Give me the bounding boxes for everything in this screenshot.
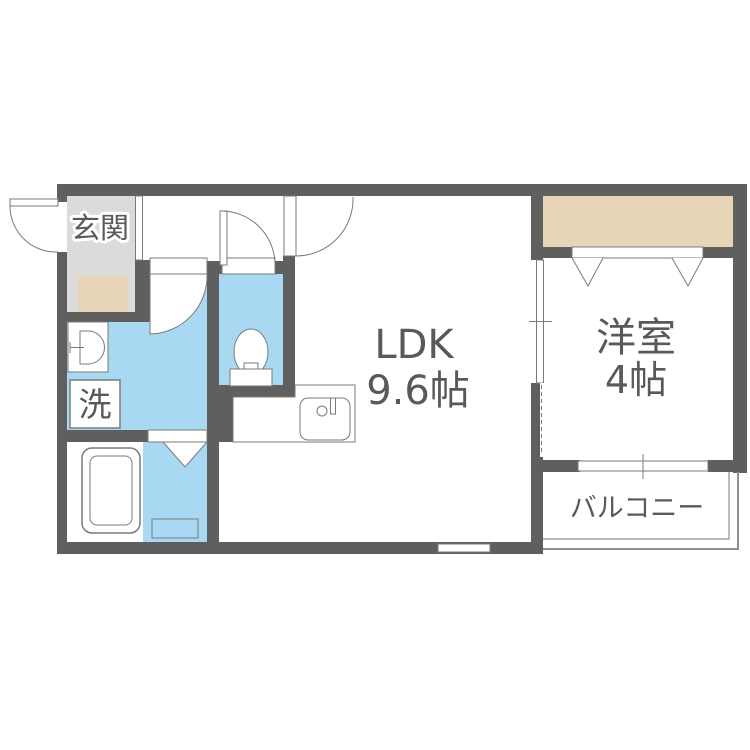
floorplan-canvas: 玄関 洗 LDK 9.6帖 洋室 4帖 バルコニー (0, 0, 750, 750)
genkan-label: 玄関 (71, 211, 129, 245)
toilet-door-arc (223, 211, 275, 263)
ldk-door-arc (296, 197, 353, 256)
wall-bath-top (57, 430, 148, 442)
bath-door-threshold (148, 430, 207, 442)
wall-washroom-right (207, 261, 219, 554)
entrance-door-arc (10, 206, 58, 252)
wall-toilet-right (283, 256, 295, 397)
ldk-window (438, 544, 490, 552)
western-room-size-label: 4帖 (605, 358, 667, 402)
toilet-door-opening (222, 258, 275, 274)
balcony-label: バルコニー (570, 493, 704, 524)
closet-folding-door-left (572, 258, 603, 286)
wall-western-pocket (531, 383, 540, 457)
floorplan-drawing: 玄関 洗 LDK 9.6帖 洋室 4帖 バルコニー (0, 0, 750, 750)
closet-folding-door-right (672, 258, 703, 286)
closet-floor (543, 196, 733, 247)
western-room-label: 洋室 (596, 315, 676, 361)
toilet-tank (230, 369, 272, 386)
kitchen-sink (300, 398, 350, 440)
wall-western-top (531, 184, 543, 260)
closet-door-track (572, 247, 703, 258)
toilet-door-leaf (220, 211, 227, 265)
wall-right (733, 184, 747, 473)
washroom-door-opening (150, 258, 207, 274)
kitchen-faucet (317, 406, 327, 416)
kitchen-faucet-lever (331, 398, 336, 414)
ldk-door-leaf (284, 196, 296, 256)
ldk-label: LDK (374, 322, 455, 368)
laundry-label: 洗 (79, 385, 112, 424)
bath-step (152, 519, 198, 538)
entrance-door-leaf (10, 199, 58, 206)
genkan-mat (78, 276, 128, 312)
wall-top (57, 184, 747, 196)
genkan-hall-partition (136, 196, 143, 260)
bathtub-inner (90, 456, 132, 525)
wall-toilet-bottom (207, 385, 295, 397)
wall-western-window-left (531, 460, 580, 472)
wall-closet-stub-right (703, 247, 733, 258)
wall-western-window-right (708, 460, 740, 472)
wall-left-lower (57, 252, 67, 554)
ldk-size-label: 9.6帖 (366, 368, 470, 414)
wall-genkan-washroom (135, 260, 150, 322)
wall-closet-stub-left (543, 247, 572, 258)
